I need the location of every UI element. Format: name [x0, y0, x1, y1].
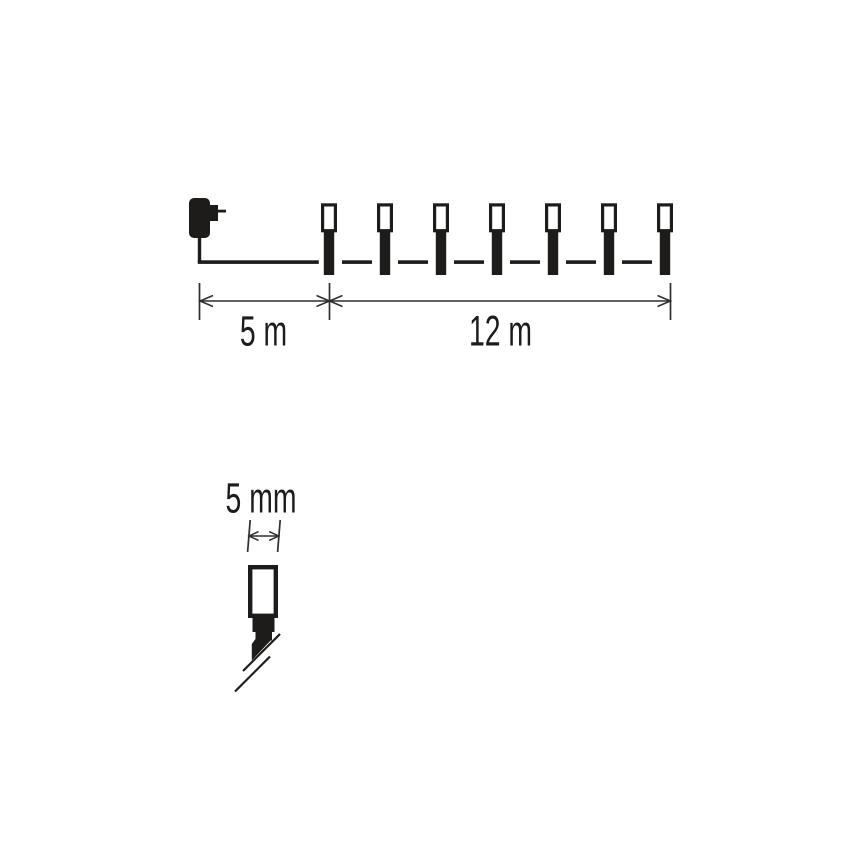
detail-bulb-glass — [250, 567, 276, 616]
bulb-socket — [492, 230, 502, 275]
led-bulb-icon — [491, 205, 504, 231]
wire-segment — [454, 260, 484, 264]
led-bulb-icon — [659, 205, 672, 231]
wire-segment — [510, 260, 540, 264]
string-lights-diagram: 5 m 12 m 5 mm — [0, 0, 868, 868]
bulb-row — [323, 205, 672, 275]
string-length-label-wrap: 12 m — [469, 307, 532, 355]
adapter-plug-block — [208, 205, 218, 221]
bulb-socket — [604, 230, 614, 275]
lead-wire-horizontal — [198, 260, 319, 264]
led-bulb-icon — [603, 205, 616, 231]
wire-segment — [566, 260, 596, 264]
adapter-plug-prong — [218, 210, 226, 213]
lead-wire-vertical — [198, 236, 201, 263]
bulb-width-label: 5 mm — [226, 474, 297, 522]
led-bulb-icon — [547, 205, 560, 231]
string-length-label: 12 m — [469, 307, 532, 355]
led-bulb-icon — [435, 205, 448, 231]
lead-length-label-wrap: 5 m — [240, 307, 287, 355]
lead-wire — [198, 236, 319, 264]
bulb-socket — [324, 230, 334, 275]
bulb-socket — [548, 230, 558, 275]
power-adapter-icon — [189, 198, 226, 238]
led-bulb-closeup-icon — [235, 567, 280, 691]
wire-segment — [398, 260, 428, 264]
wire-segment — [342, 260, 372, 264]
led-bulb-icon — [379, 205, 392, 231]
detail-dimension — [248, 520, 281, 552]
adapter-body — [189, 198, 210, 238]
lead-length-label: 5 m — [240, 307, 287, 355]
bulb-width-label-wrap: 5 mm — [226, 474, 297, 522]
bulb-socket — [380, 230, 390, 275]
led-bulb-icon — [323, 205, 336, 231]
bulb-socket — [660, 230, 670, 275]
wire-segment — [622, 260, 652, 264]
bulb-socket — [436, 230, 446, 275]
diagram-canvas: 5 m 12 m 5 mm — [0, 0, 868, 868]
